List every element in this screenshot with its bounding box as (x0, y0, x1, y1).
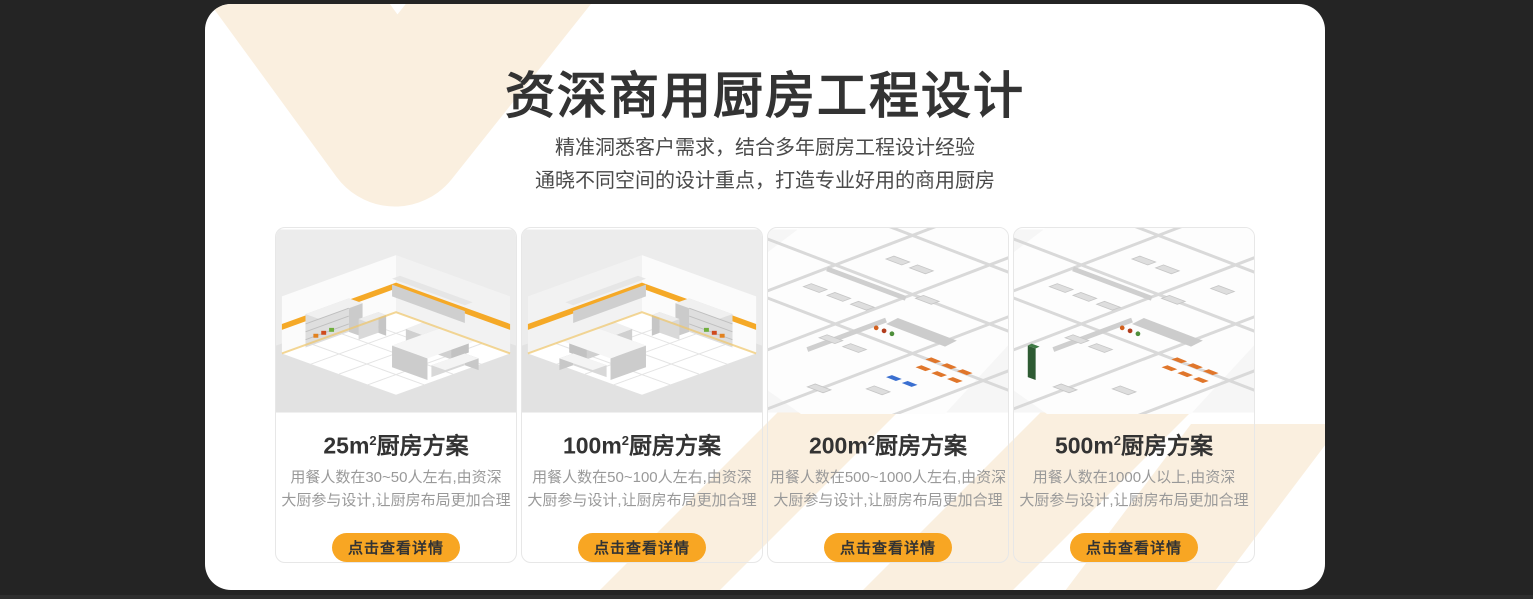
plan-title-suffix: 厨房方案 (1121, 433, 1213, 459)
plan-card-description: 用餐人数在50~100人左右,由资深 大厨参与设计,让厨房布局更加合理 (527, 466, 756, 512)
plan-title-suffix: 厨房方案 (875, 433, 967, 459)
plan-area-value: 200m (809, 433, 868, 459)
plan-description-line-1: 用餐人数在500~1000人左右,由资深 (770, 466, 1006, 489)
plan-cards-row: 25m2厨房方案 用餐人数在30~50人左右,由资深 大厨参与设计,让厨房布局更… (205, 227, 1325, 563)
plan-description-line-1: 用餐人数在30~50人左右,由资深 (281, 466, 510, 489)
kitchen-design-section: 资深商用厨房工程设计 精准洞悉客户需求，结合多年厨房工程设计经验 通晓不同空间的… (205, 4, 1325, 590)
plan-card-description: 用餐人数在500~1000人左右,由资深 大厨参与设计,让厨房布局更加合理 (770, 466, 1006, 512)
plan-description-line-2: 大厨参与设计,让厨房布局更加合理 (281, 489, 510, 512)
plan-card-500m2: 500m2厨房方案 用餐人数在1000人以上,由资深 大厨参与设计,让厨房布局更… (1013, 227, 1255, 563)
plan-card-description: 用餐人数在1000人以上,由资深 大厨参与设计,让厨房布局更加合理 (1019, 466, 1248, 512)
plan-area-superscript: 2 (1114, 433, 1121, 448)
section-subtitle: 精准洞悉客户需求，结合多年厨房工程设计经验 通晓不同空间的设计重点，打造专业好用… (205, 132, 1325, 198)
plan-card-title: 200m2厨房方案 (809, 428, 967, 459)
view-details-button-25m2[interactable]: 点击查看详情 (332, 533, 460, 562)
isometric-kitchen-plan-200m2-image (768, 228, 1008, 414)
plan-card-title: 100m2厨房方案 (563, 428, 721, 459)
plan-area-superscript: 2 (622, 433, 629, 448)
isometric-kitchen-25m2-image (276, 228, 516, 414)
bottom-divider-strip (0, 595, 1533, 599)
plan-description-line-2: 大厨参与设计,让厨房布局更加合理 (770, 489, 1006, 512)
plan-description-line-2: 大厨参与设计,让厨房布局更加合理 (1019, 489, 1248, 512)
isometric-kitchen-100m2-image (522, 228, 762, 414)
plan-area-value: 100m (563, 433, 622, 459)
isometric-kitchen-plan-500m2-image (1014, 228, 1254, 414)
plan-description-line-2: 大厨参与设计,让厨房布局更加合理 (527, 489, 756, 512)
plan-area-superscript: 2 (868, 433, 875, 448)
view-details-button-100m2[interactable]: 点击查看详情 (578, 533, 706, 562)
section-subtitle-line-1: 精准洞悉客户需求，结合多年厨房工程设计经验 (205, 132, 1325, 165)
plan-area-superscript: 2 (369, 433, 376, 448)
plan-description-line-1: 用餐人数在1000人以上,由资深 (1019, 466, 1248, 489)
plan-area-value: 500m (1055, 433, 1114, 459)
plan-title-suffix: 厨房方案 (377, 433, 469, 459)
plan-card-200m2: 200m2厨房方案 用餐人数在500~1000人左右,由资深 大厨参与设计,让厨… (767, 227, 1009, 563)
plan-description-line-1: 用餐人数在50~100人左右,由资深 (527, 466, 756, 489)
view-details-button-500m2[interactable]: 点击查看详情 (1070, 533, 1198, 562)
plan-card-100m2: 100m2厨房方案 用餐人数在50~100人左右,由资深 大厨参与设计,让厨房布… (521, 227, 763, 563)
plan-card-title: 500m2厨房方案 (1055, 428, 1213, 459)
plan-area-value: 25m (323, 433, 369, 459)
plan-card-description: 用餐人数在30~50人左右,由资深 大厨参与设计,让厨房布局更加合理 (281, 466, 510, 512)
plan-card-25m2: 25m2厨房方案 用餐人数在30~50人左右,由资深 大厨参与设计,让厨房布局更… (275, 227, 517, 563)
plan-card-title: 25m2厨房方案 (323, 428, 468, 459)
section-title: 资深商用厨房工程设计 (205, 56, 1325, 128)
plan-title-suffix: 厨房方案 (629, 433, 721, 459)
view-details-button-200m2[interactable]: 点击查看详情 (824, 533, 952, 562)
section-subtitle-line-2: 通晓不同空间的设计重点，打造专业好用的商用厨房 (205, 165, 1325, 198)
